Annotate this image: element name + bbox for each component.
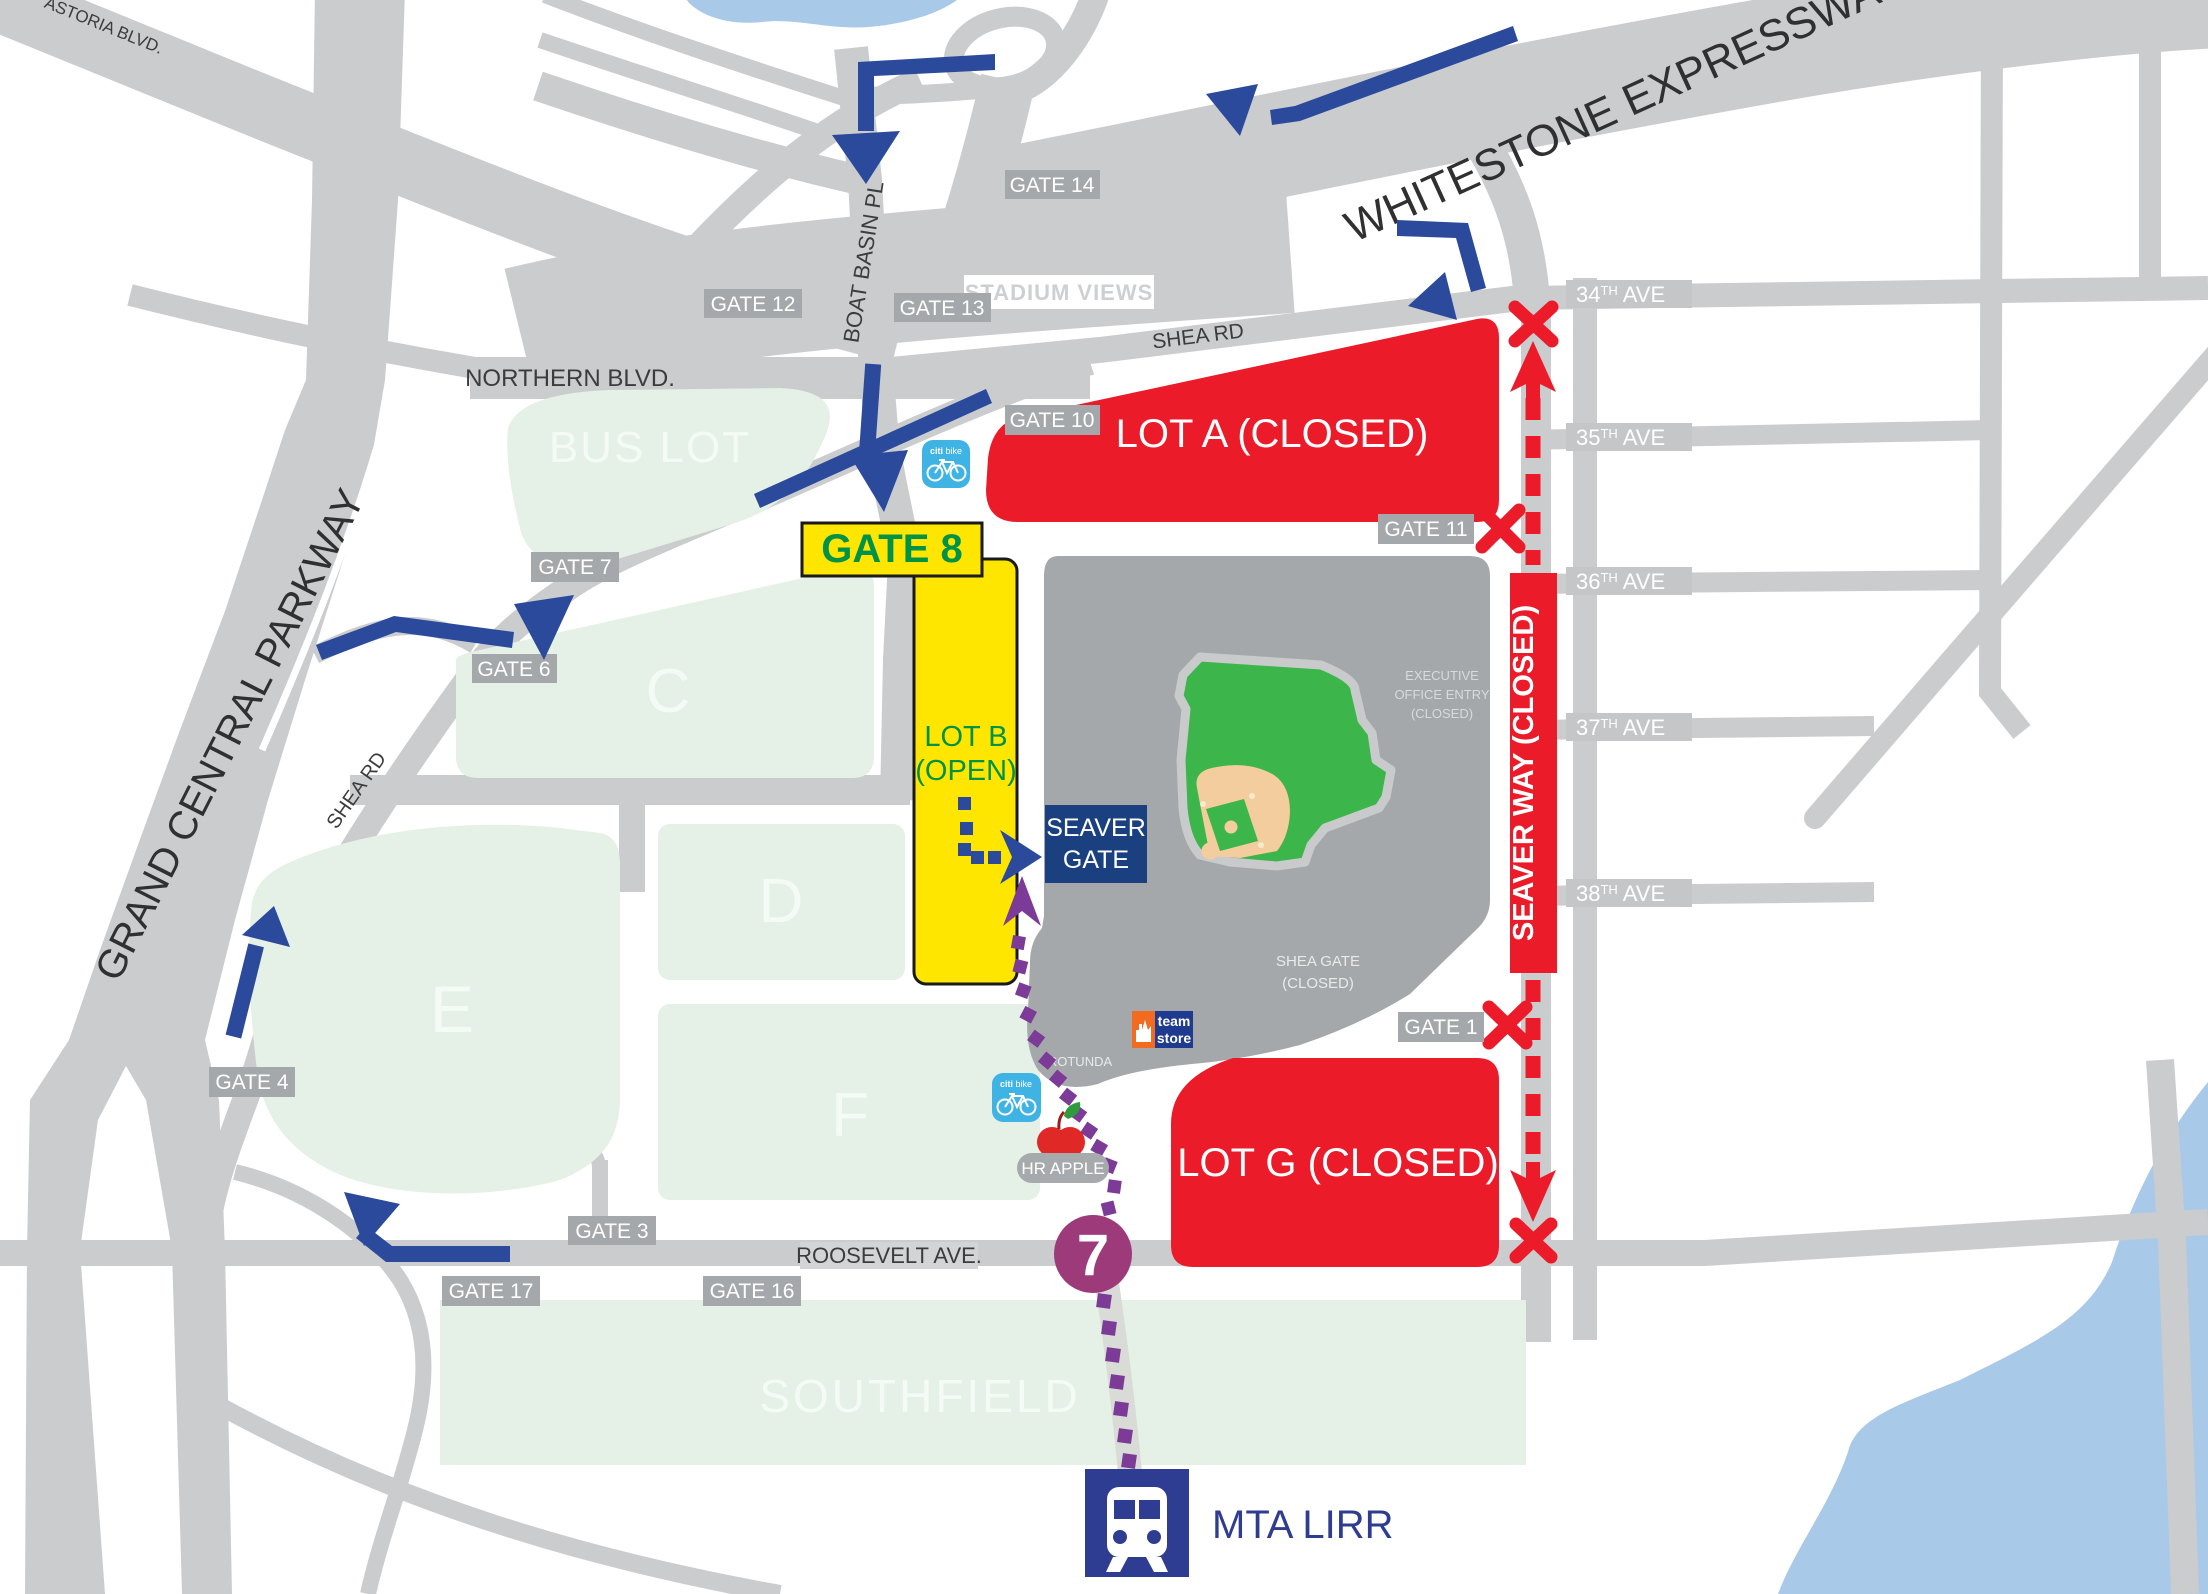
svg-text:GATE 7: GATE 7 (538, 556, 611, 579)
svg-text:GATE 14: GATE 14 (1010, 174, 1095, 197)
svg-text:citi bike: citi bike (1000, 1079, 1032, 1089)
svg-text:LOT G (CLOSED): LOT G (CLOSED) (1177, 1141, 1499, 1185)
svg-text:GATE: GATE (1063, 846, 1129, 874)
svg-text:(CLOSED): (CLOSED) (1282, 975, 1354, 992)
svg-text:team: team (1158, 1013, 1191, 1029)
svg-text:ROOSEVELT AVE.: ROOSEVELT AVE. (796, 1243, 982, 1268)
svg-text:SEAVER: SEAVER (1046, 814, 1146, 842)
svg-text:GATE 10: GATE 10 (1010, 409, 1095, 432)
svg-text:SHEA GATE: SHEA GATE (1276, 953, 1360, 970)
svg-text:NORTHERN BLVD.: NORTHERN BLVD. (465, 365, 675, 392)
svg-text:SEAVER WAY (CLOSED): SEAVER WAY (CLOSED) (1508, 605, 1540, 941)
svg-text:GATE 13: GATE 13 (900, 297, 985, 320)
svg-text:ROTUNDA: ROTUNDA (1048, 1054, 1113, 1069)
svg-text:35TH AVE: 35TH AVE (1576, 425, 1665, 450)
svg-text:LOT B: LOT B (924, 721, 1007, 753)
svg-text:MTA LIRR: MTA LIRR (1212, 1503, 1394, 1547)
svg-text:36TH AVE: 36TH AVE (1576, 569, 1665, 594)
svg-text:GATE 12: GATE 12 (711, 293, 796, 316)
svg-text:STADIUM VIEWS: STADIUM VIEWS (965, 280, 1154, 305)
svg-text:GATE 17: GATE 17 (449, 1280, 534, 1303)
svg-text:GATE 6: GATE 6 (477, 658, 550, 681)
svg-text:7: 7 (1077, 1223, 1109, 1288)
svg-text:GATE 1: GATE 1 (1404, 1016, 1477, 1039)
svg-text:GATE 4: GATE 4 (215, 1071, 288, 1094)
svg-text:37TH AVE: 37TH AVE (1576, 715, 1665, 740)
svg-text:LOT A (CLOSED): LOT A (CLOSED) (1116, 412, 1429, 456)
svg-text:F: F (831, 1081, 869, 1150)
svg-text:C: C (646, 657, 691, 726)
svg-text:(CLOSED): (CLOSED) (1411, 706, 1473, 721)
svg-text:(OPEN): (OPEN) (915, 755, 1017, 787)
svg-text:GATE 11: GATE 11 (1384, 518, 1467, 541)
svg-text:BUS LOT: BUS LOT (549, 423, 751, 472)
svg-text:GATE 3: GATE 3 (575, 1220, 648, 1243)
svg-text:citi bike: citi bike (930, 446, 962, 456)
svg-text:OFFICE ENTRY: OFFICE ENTRY (1394, 687, 1489, 702)
svg-text:E: E (430, 972, 474, 1046)
svg-text:GATE 8: GATE 8 (821, 527, 963, 571)
svg-text:EXECUTIVE: EXECUTIVE (1405, 668, 1479, 683)
svg-text:GATE 16: GATE 16 (710, 1280, 795, 1303)
svg-text:HR APPLE: HR APPLE (1021, 1159, 1104, 1178)
svg-text:38TH AVE: 38TH AVE (1576, 881, 1665, 906)
svg-text:SOUTHFIELD: SOUTHFIELD (759, 1370, 1080, 1422)
svg-text:D: D (759, 867, 804, 936)
svg-text:34TH AVE: 34TH AVE (1576, 282, 1665, 307)
svg-text:store: store (1157, 1030, 1191, 1046)
